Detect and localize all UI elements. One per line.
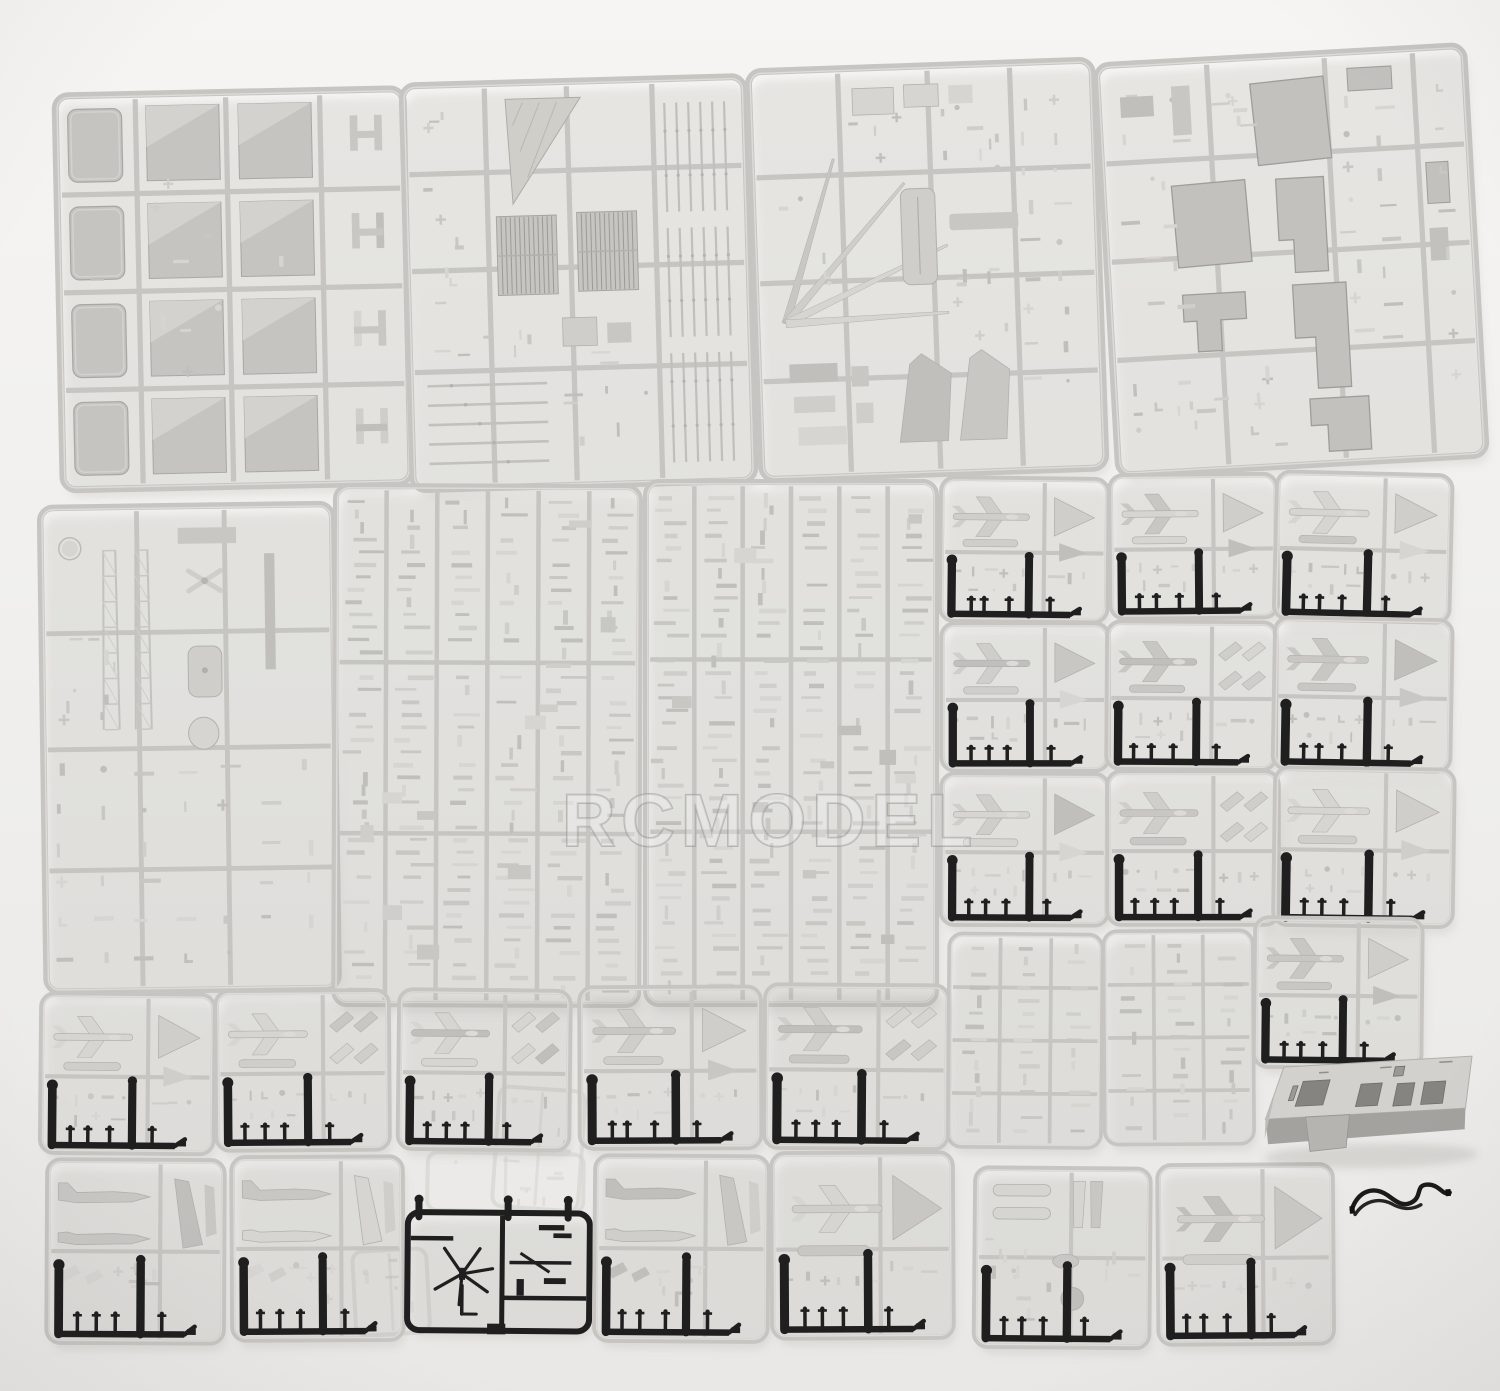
display-base-part bbox=[1262, 1056, 1478, 1170]
sprues-layer bbox=[40, 45, 1490, 1356]
watermark-text: RCMODEL bbox=[562, 779, 978, 862]
product-photo: RCMODEL bbox=[0, 0, 1500, 1391]
sprues-photo-svg: RCMODEL bbox=[0, 0, 1500, 1391]
